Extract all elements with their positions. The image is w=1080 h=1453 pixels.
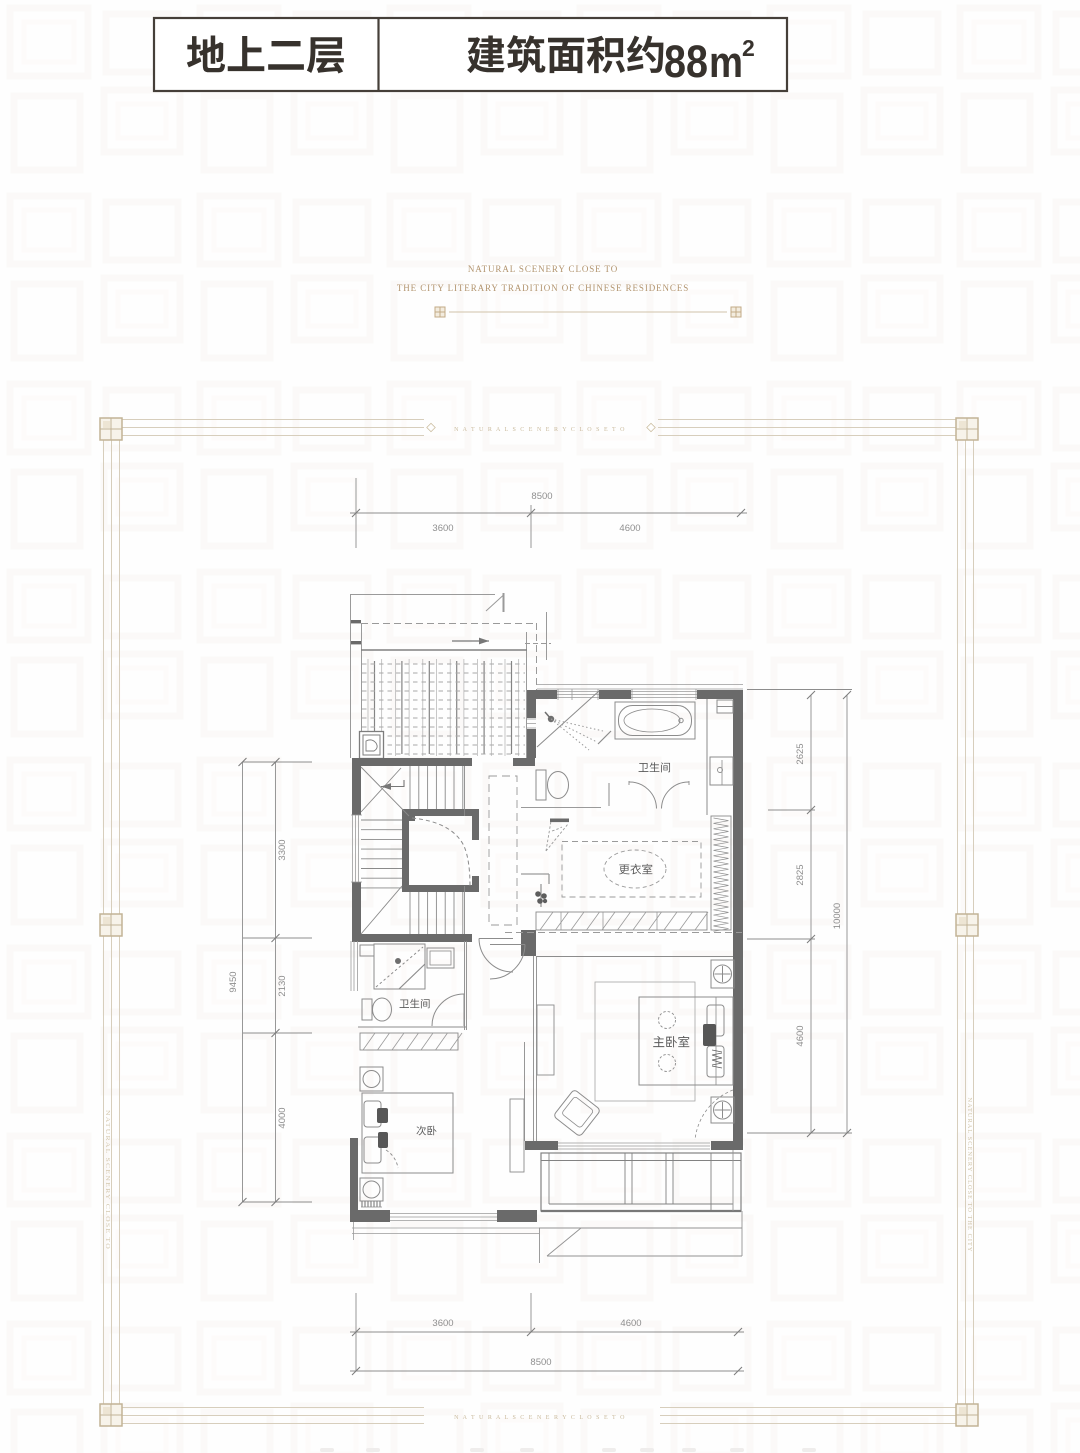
svg-text:4600: 4600 [795, 1025, 806, 1046]
svg-text:N A T U R A L S C E N E R Y C: N A T U R A L S C E N E R Y C L O S E T … [454, 427, 626, 433]
svg-text:3600: 3600 [432, 523, 453, 534]
svg-text:9450: 9450 [228, 971, 239, 992]
svg-text:NATURAL SCENERY CLOSE TO: NATURAL SCENERY CLOSE TO [468, 264, 618, 274]
svg-text:8500: 8500 [531, 491, 552, 502]
svg-text:THE CITY LITERARY TRADITION OF: THE CITY LITERARY TRADITION OF CHINESE R… [397, 283, 689, 293]
svg-text:NATURAL SCENERY CLOSE TO THE C: NATURAL SCENERY CLOSE TO THE CITY [966, 1098, 972, 1253]
svg-text:2130: 2130 [277, 975, 288, 996]
svg-text:10000: 10000 [832, 903, 843, 929]
svg-text:8500: 8500 [530, 1357, 551, 1368]
svg-text:m: m [709, 38, 743, 87]
svg-text:3600: 3600 [432, 1318, 453, 1329]
svg-text:88: 88 [664, 36, 708, 87]
svg-text:2: 2 [742, 35, 755, 61]
svg-text:3300: 3300 [277, 839, 288, 860]
svg-text:2625: 2625 [795, 743, 806, 764]
svg-text:4600: 4600 [619, 523, 640, 534]
svg-text:N A T U R A L S C E N E R Y C: N A T U R A L S C E N E R Y C L O S E T … [454, 1415, 626, 1421]
svg-text:4600: 4600 [620, 1318, 641, 1329]
svg-text:NATURAL SCENERY CLOSE TO: NATURAL SCENERY CLOSE TO [104, 1110, 110, 1250]
svg-text:2825: 2825 [795, 864, 806, 885]
svg-text:4000: 4000 [277, 1107, 288, 1128]
